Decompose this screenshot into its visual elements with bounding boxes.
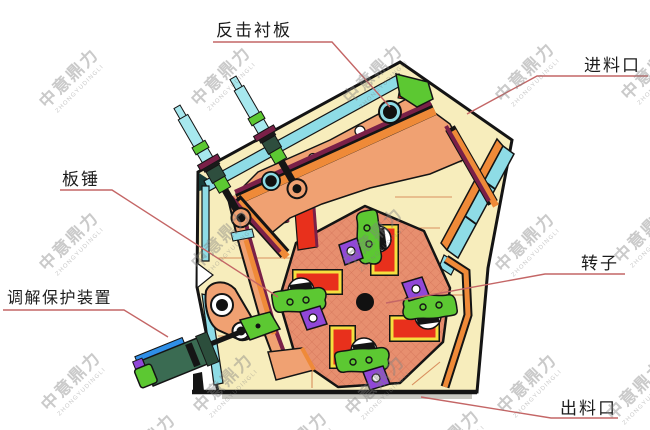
watermark: 中意鼎力ZHONGYUDINGLI: [493, 349, 567, 423]
watermark: 中意鼎力ZHONGYUDINGLI: [602, 356, 650, 430]
impact-crusher-diagram: 反击衬板 进料口 板锤 调解保护装置 转子 出料口 中意鼎力ZHONGYUDIN…: [0, 0, 650, 430]
base-shadow: [222, 394, 472, 399]
watermark: 中意鼎力ZHONGYUDINGLI: [264, 407, 338, 430]
label-feed-inlet: 进料口: [584, 56, 641, 75]
watermark: 中意鼎力ZHONGYUDINGLI: [491, 38, 565, 112]
label-adjusting-device: 调解保护装置: [7, 289, 112, 307]
pivot-eye-hole: [216, 299, 228, 311]
label-impact-liner: 反击衬板: [216, 21, 292, 40]
watermark: 中意鼎力ZHONGYUDINGLI: [37, 347, 111, 421]
watermark: 中意鼎力ZHONGYUDINGLI: [491, 208, 565, 282]
watermark: 中意鼎力ZHONGYUDINGLI: [112, 409, 186, 430]
link-hole: [256, 324, 261, 329]
leader-adjusting-device: [3, 310, 168, 337]
watermark: 中意鼎力ZHONGYUDINGLI: [416, 405, 490, 430]
watermark-cn: 中意鼎力: [602, 356, 650, 424]
watermark-cn: 中意鼎力: [112, 409, 180, 430]
watermark: 中意鼎力ZHONGYUDINGLI: [35, 207, 109, 281]
watermark: 中意鼎力ZHONGYUDINGLI: [35, 44, 109, 118]
wall-foot-block: [193, 372, 204, 391]
watermark-cn: 中意鼎力: [416, 405, 484, 430]
screenshot-root: 反击衬板 进料口 板锤 调解保护装置 转子 出料口 中意鼎力ZHONGYUDIN…: [0, 0, 650, 430]
watermark-cn: 中意鼎力: [264, 407, 332, 430]
label-blow-bar: 板锤: [62, 170, 100, 189]
adjustment-device: [129, 328, 219, 392]
rotor-shaft-hole: [356, 293, 374, 311]
